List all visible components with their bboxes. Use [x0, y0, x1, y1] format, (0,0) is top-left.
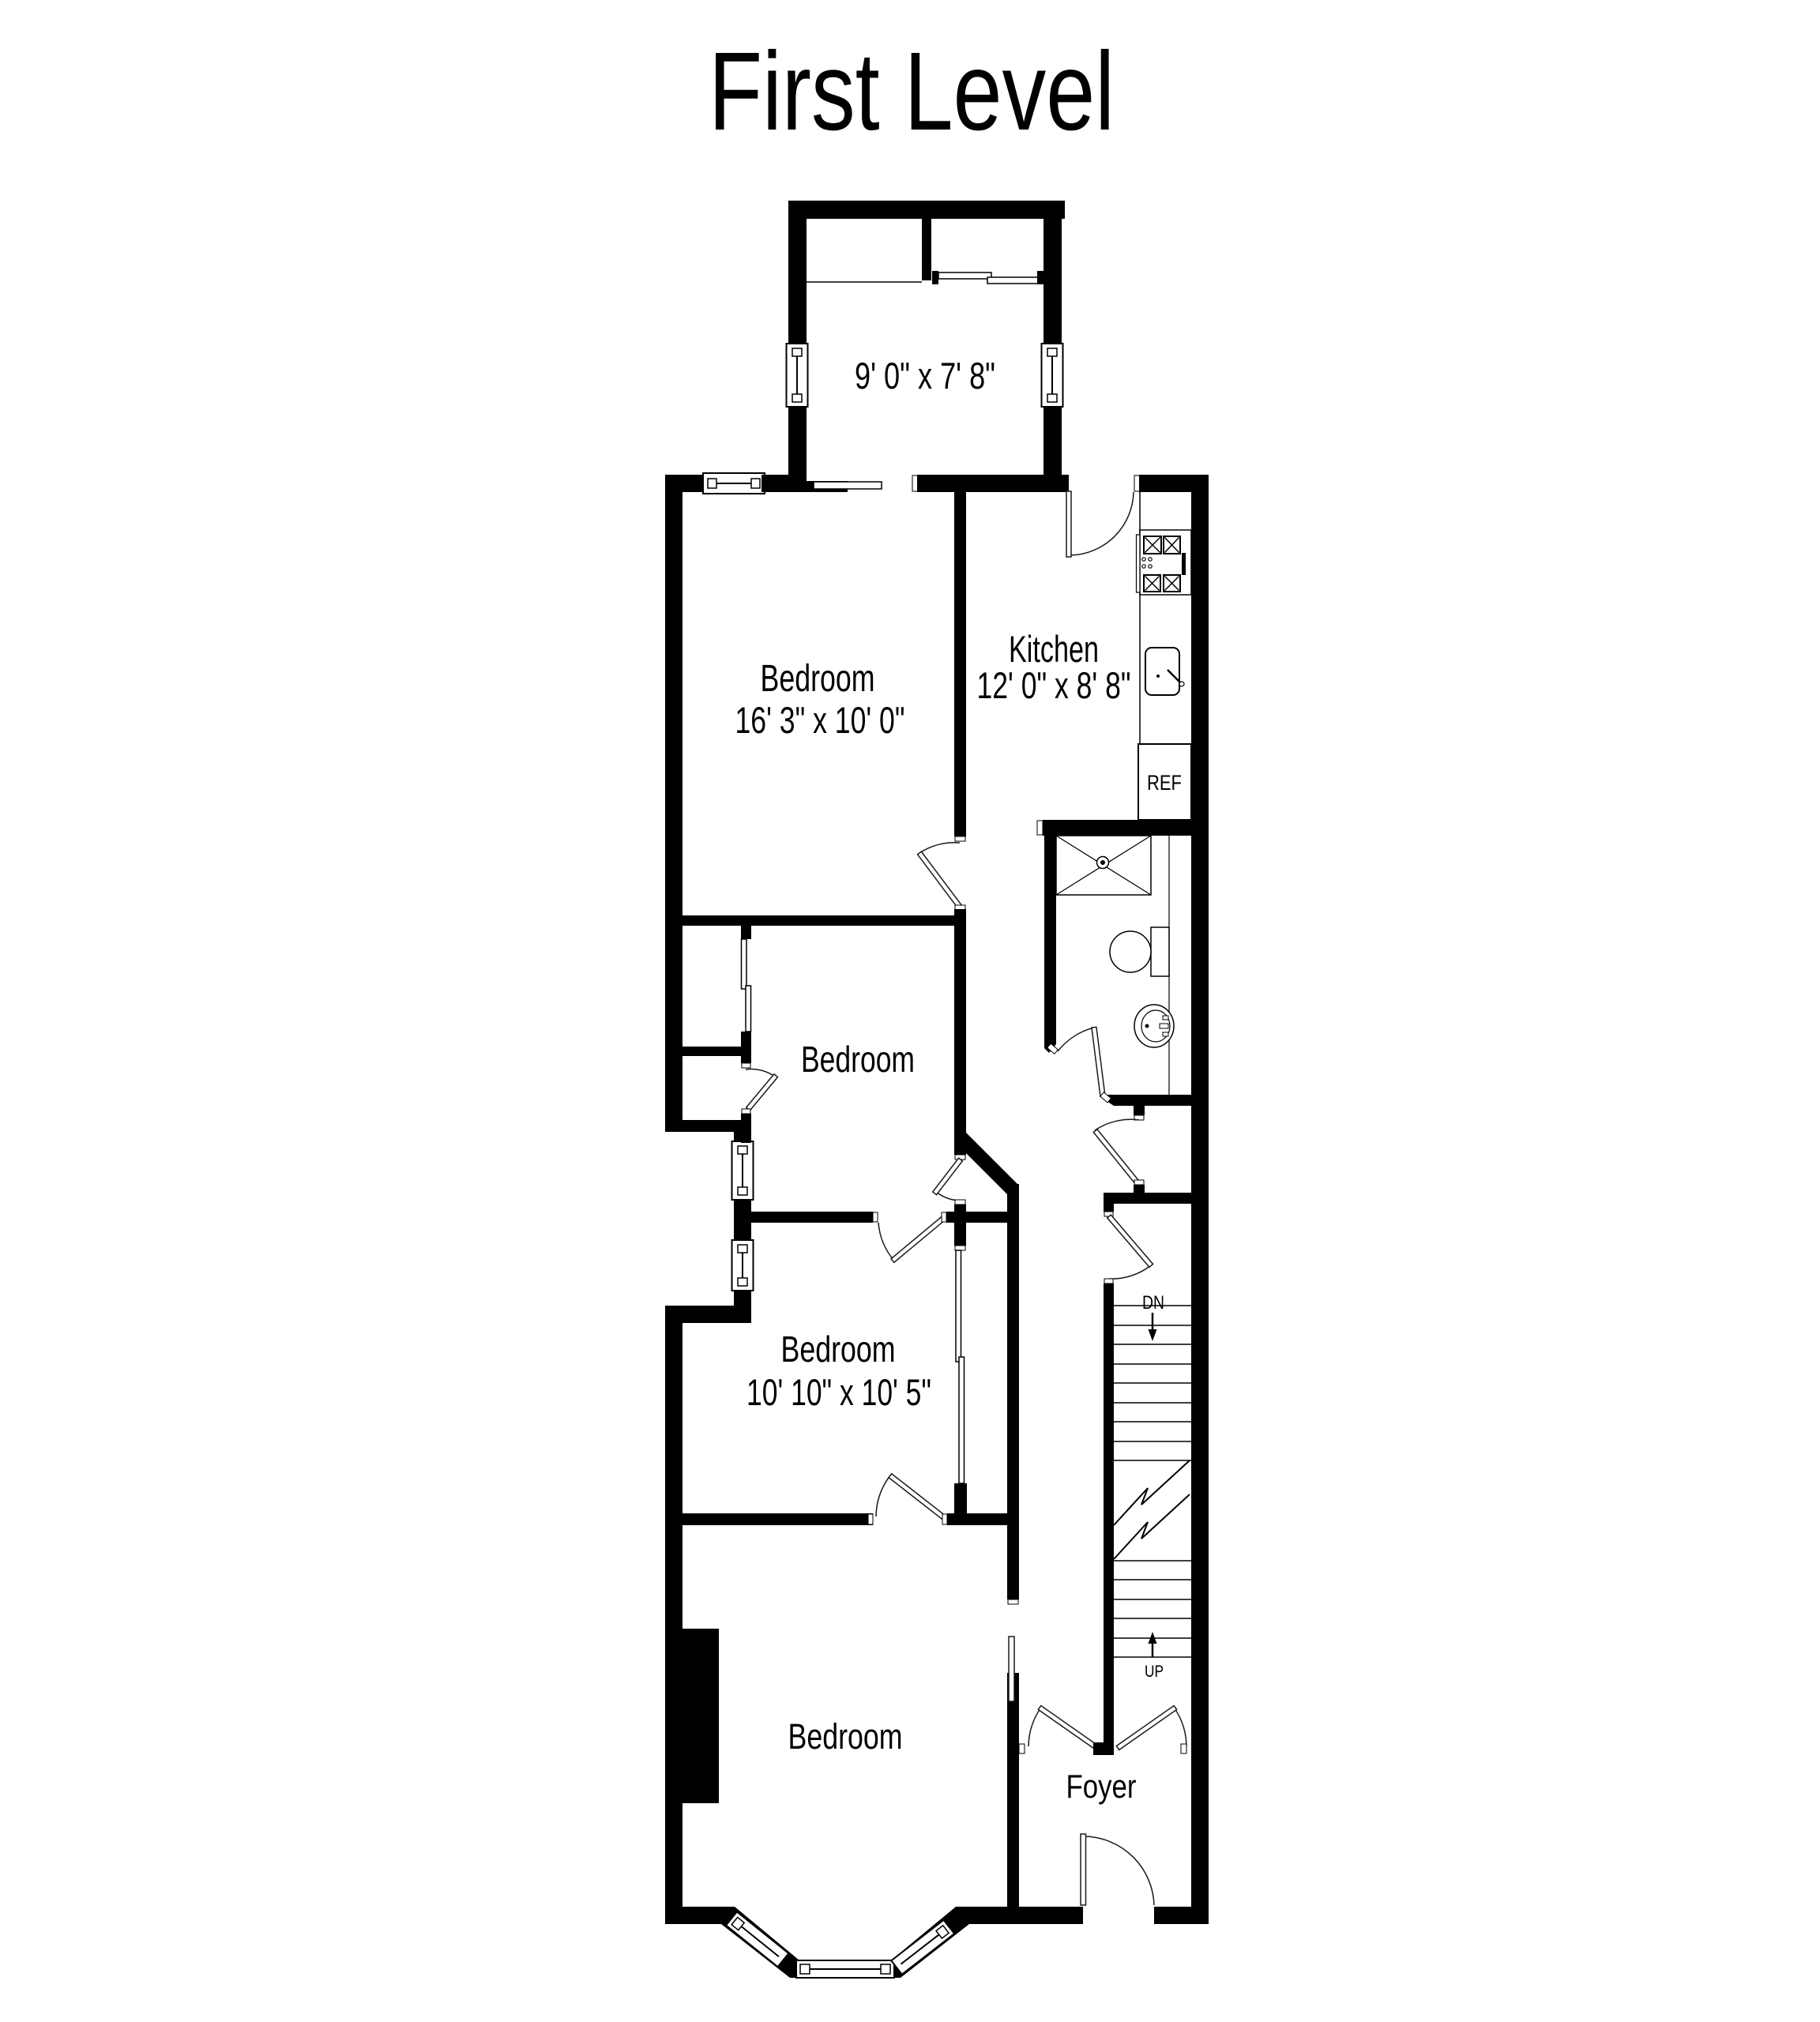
svg-text:First Level: First Level: [709, 28, 1115, 153]
svg-text:Bedroom: Bedroom: [761, 658, 875, 700]
svg-text:Bedroom: Bedroom: [781, 1329, 896, 1370]
svg-text:12' 0" x 8' 8": 12' 0" x 8' 8": [977, 664, 1131, 706]
svg-text:Bedroom: Bedroom: [801, 1039, 915, 1080]
svg-text:Bedroom: Bedroom: [788, 1716, 903, 1757]
svg-text:UP: UP: [1145, 1663, 1164, 1681]
svg-text:Foyer: Foyer: [1066, 1768, 1137, 1805]
svg-text:DN: DN: [1142, 1292, 1164, 1314]
svg-text:9' 0" x 7' 8": 9' 0" x 7' 8": [855, 355, 995, 397]
svg-text:16' 3" x 10' 0": 16' 3" x 10' 0": [735, 699, 905, 741]
svg-text:REF: REF: [1147, 771, 1182, 795]
svg-text:10' 10" x 10' 5": 10' 10" x 10' 5": [746, 1371, 931, 1413]
